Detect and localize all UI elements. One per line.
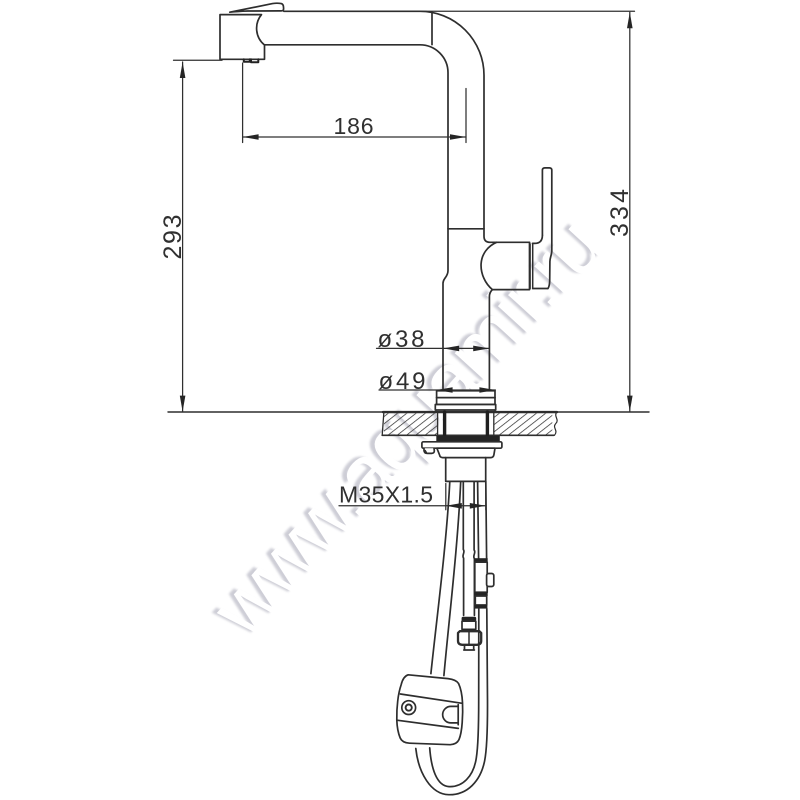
- svg-text:ø49: ø49: [379, 368, 426, 395]
- svg-text:334: 334: [606, 189, 634, 237]
- svg-text:293: 293: [159, 215, 187, 260]
- svg-text:M35X1.5: M35X1.5: [339, 482, 433, 508]
- svg-text:186: 186: [334, 113, 374, 139]
- svg-text:ø38: ø38: [378, 326, 425, 353]
